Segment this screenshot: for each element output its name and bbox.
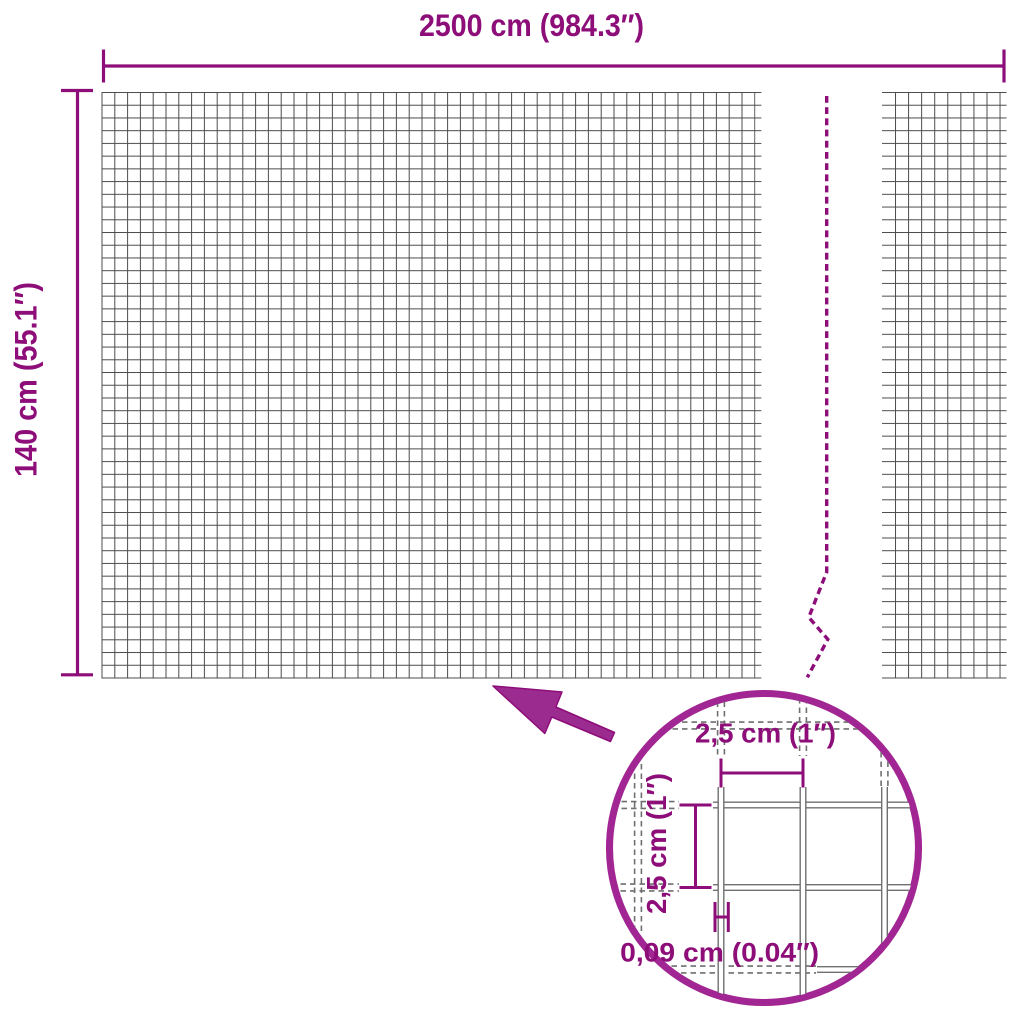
svg-text:0,09 cm (0.04″): 0,09 cm (0.04″) [620,938,819,968]
svg-text:2,5 cm (1″): 2,5 cm (1″) [641,773,672,914]
svg-text:2500 cm (984.3″): 2500 cm (984.3″) [419,7,644,43]
svg-text:2,5 cm (1″): 2,5 cm (1″) [695,718,836,749]
svg-text:140 cm (55.1″): 140 cm (55.1″) [8,282,44,477]
